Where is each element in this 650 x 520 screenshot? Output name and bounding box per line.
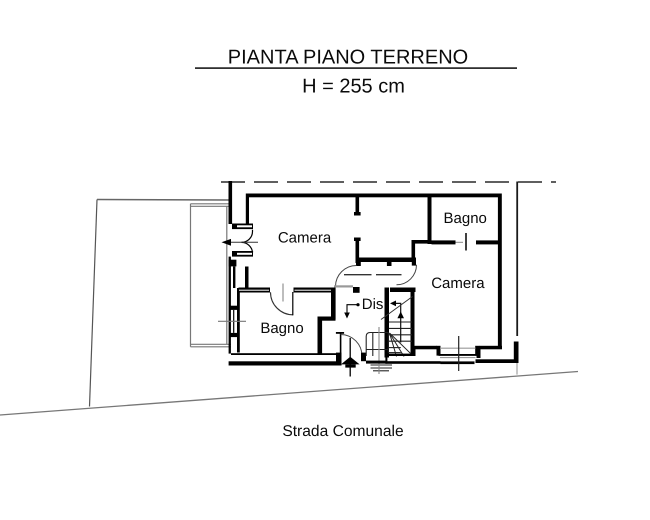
- svg-text:Strada Comunale: Strada Comunale: [282, 423, 403, 440]
- svg-text:Bagno: Bagno: [444, 210, 487, 227]
- svg-text:PIANTA PIANO TERRENO: PIANTA PIANO TERRENO: [228, 47, 468, 69]
- svg-text:Camera: Camera: [278, 230, 332, 247]
- svg-text:Dis.: Dis.: [362, 296, 388, 313]
- svg-text:Camera: Camera: [431, 275, 485, 292]
- svg-text:Bagno: Bagno: [260, 320, 303, 337]
- svg-text:H = 255 cm: H = 255 cm: [302, 76, 405, 98]
